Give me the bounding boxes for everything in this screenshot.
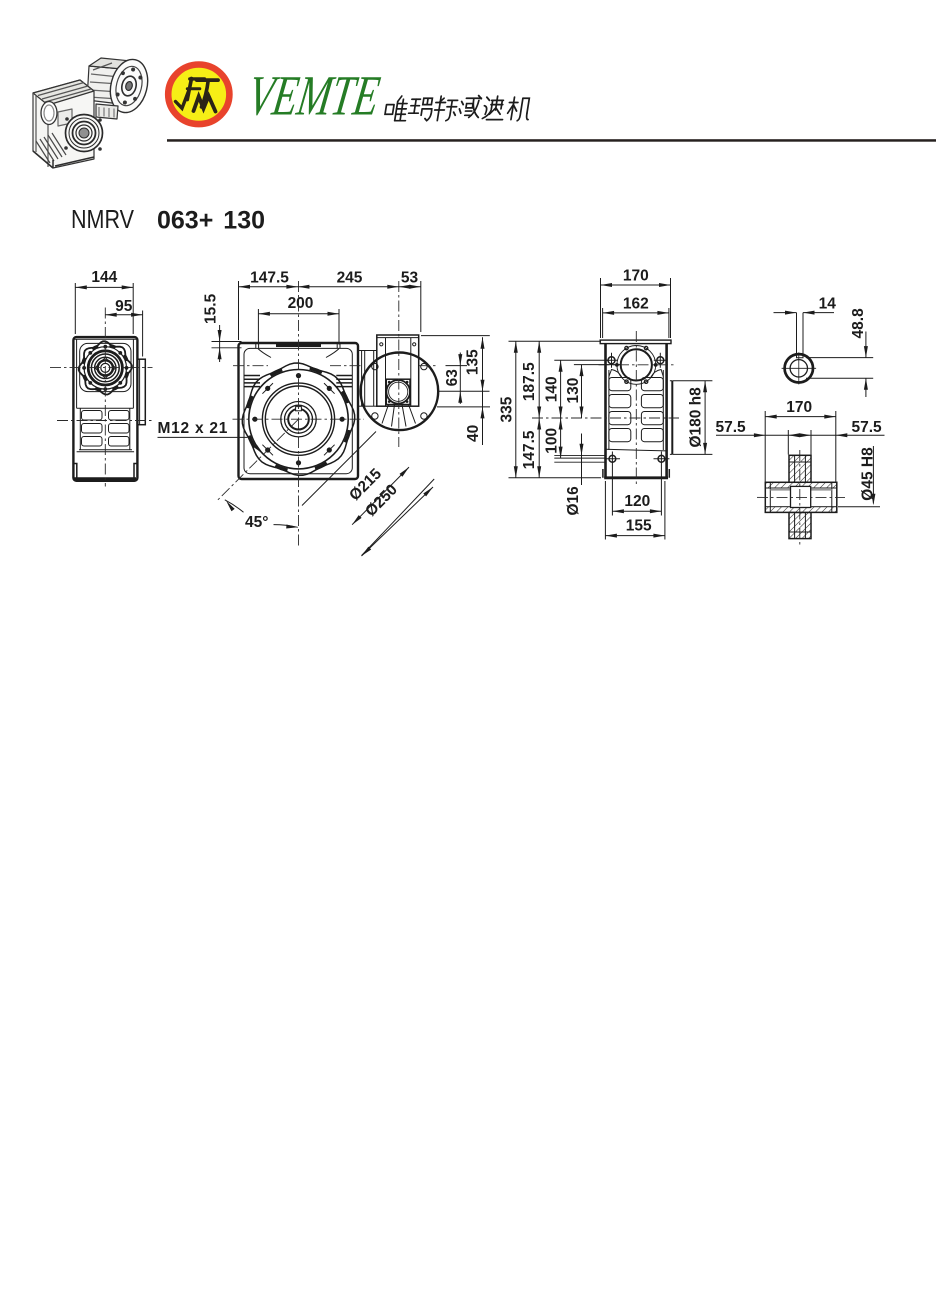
svg-text:Ø16: Ø16: [565, 486, 582, 516]
svg-text:95: 95: [115, 298, 133, 315]
svg-text:063+: 063+: [157, 207, 213, 235]
svg-text:162: 162: [623, 296, 649, 313]
svg-text:57.5: 57.5: [716, 419, 747, 436]
svg-text:135: 135: [464, 349, 481, 375]
svg-text:130: 130: [565, 378, 582, 404]
svg-text:170: 170: [623, 268, 649, 285]
svg-text:53: 53: [401, 269, 419, 286]
svg-text:14: 14: [819, 295, 837, 312]
svg-text:140: 140: [544, 376, 561, 402]
svg-text:100: 100: [543, 428, 560, 454]
svg-text:335: 335: [499, 396, 516, 422]
svg-text:200: 200: [288, 295, 314, 312]
svg-text:63: 63: [444, 369, 461, 387]
svg-text:130: 130: [223, 207, 265, 235]
svg-text:M12 x 21: M12 x 21: [158, 420, 229, 437]
svg-text:245: 245: [337, 269, 363, 286]
svg-text:VEMTE: VEMTE: [244, 65, 384, 128]
svg-text:147.5: 147.5: [521, 430, 538, 469]
svg-text:15.5: 15.5: [202, 293, 219, 324]
svg-text:147.5: 147.5: [250, 269, 289, 286]
svg-text:40: 40: [465, 425, 482, 442]
svg-text:144: 144: [91, 269, 117, 286]
svg-text:57.5: 57.5: [852, 419, 883, 436]
svg-text:155: 155: [626, 518, 652, 535]
svg-text:45°: 45°: [245, 514, 268, 531]
svg-text:NMRV: NMRV: [71, 206, 134, 234]
svg-text:170: 170: [786, 399, 812, 416]
svg-text:Ø180 h8: Ø180 h8: [687, 387, 704, 448]
svg-text:Ø45 H8: Ø45 H8: [860, 447, 877, 501]
svg-text:187.5: 187.5: [521, 362, 538, 401]
svg-text:48.8: 48.8: [850, 308, 867, 339]
svg-text:120: 120: [624, 493, 650, 510]
